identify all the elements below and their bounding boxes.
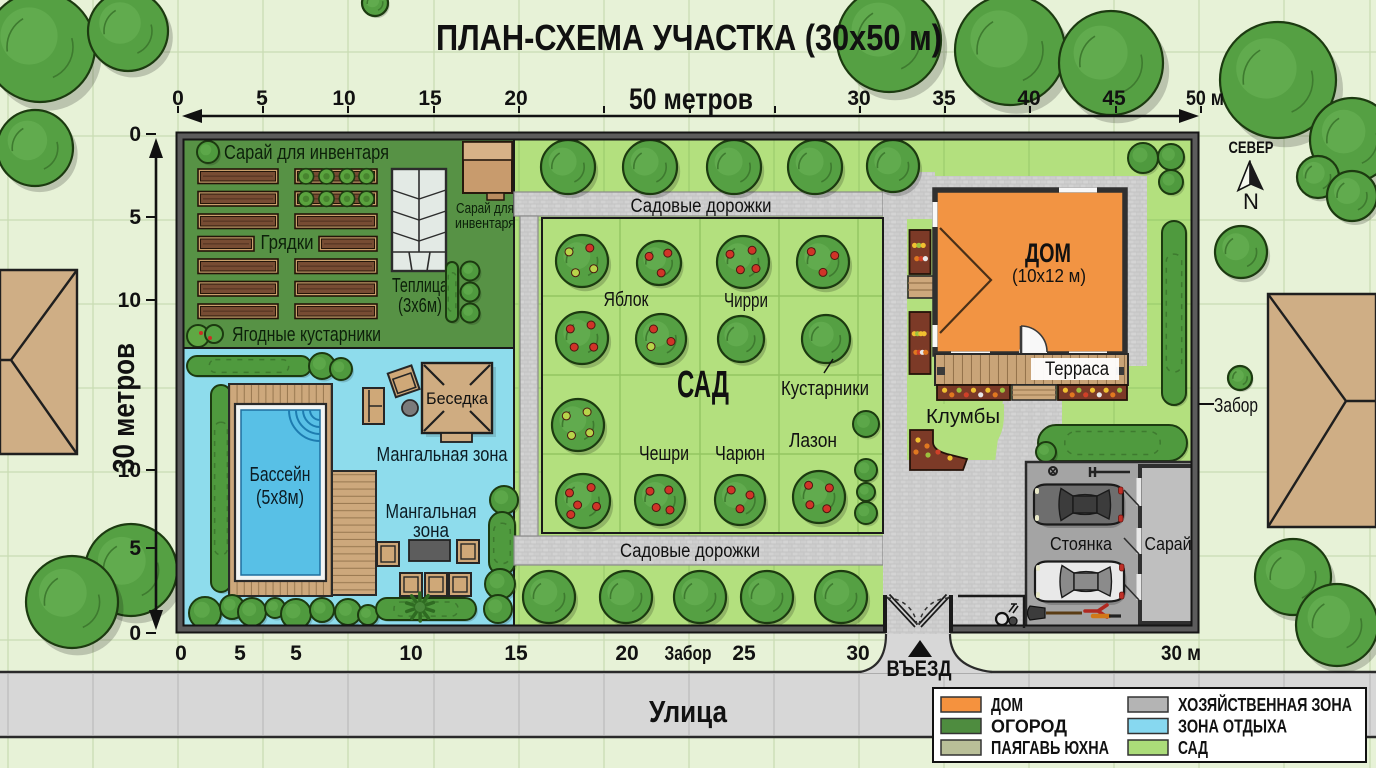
svg-text:Улица: Улица <box>649 694 728 729</box>
svg-text:50 метров: 50 метров <box>629 83 753 116</box>
svg-text:САД: САД <box>677 364 729 406</box>
svg-text:Сарай: Сарай <box>1145 534 1192 554</box>
svg-text:ВЪЕЗД: ВЪЕЗД <box>887 656 952 681</box>
svg-text:ЗОНА ОТДЫХА: ЗОНА ОТДЫХА <box>1178 717 1287 737</box>
svg-text:Забор: Забор <box>665 643 712 665</box>
svg-text:25: 25 <box>732 642 756 665</box>
svg-text:40: 40 <box>1017 87 1040 110</box>
svg-text:Садовые дорожки: Садовые дорожки <box>620 541 760 562</box>
svg-text:30: 30 <box>847 87 870 110</box>
svg-text:инвентаря: инвентаря <box>455 215 515 232</box>
svg-text:Забор: Забор <box>1214 395 1258 417</box>
svg-text:Яблок: Яблок <box>604 289 649 311</box>
svg-text:10: 10 <box>399 642 422 665</box>
svg-text:Кустарники: Кустарники <box>781 378 869 400</box>
svg-text:зона: зона <box>413 520 450 542</box>
svg-text:Чешри: Чешри <box>639 443 689 465</box>
svg-text:Стоянка: Стоянка <box>1050 534 1113 554</box>
svg-text:Садовые дорожки: Садовые дорожки <box>631 196 772 217</box>
svg-text:ПЛАН-СХЕМА УЧАСТКА (30х50 м): ПЛАН-СХЕМА УЧАСТКА (30х50 м) <box>436 17 942 58</box>
svg-text:50 м: 50 м <box>1186 87 1224 110</box>
svg-text:5: 5 <box>256 87 268 110</box>
svg-text:Теплица: Теплица <box>392 275 449 297</box>
svg-text:5: 5 <box>234 642 246 665</box>
svg-text:30 м: 30 м <box>1161 642 1201 665</box>
svg-text:30: 30 <box>846 642 869 665</box>
svg-text:0: 0 <box>175 642 187 665</box>
svg-text:(10х12 м): (10х12 м) <box>1012 266 1086 286</box>
svg-text:35: 35 <box>932 87 956 110</box>
svg-text:ПАЯГАВЬ ЮХНА: ПАЯГАВЬ ЮХНА <box>991 738 1109 758</box>
svg-text:15: 15 <box>504 642 528 665</box>
svg-text:ХОЗЯЙСТВЕННАЯ ЗОНА: ХОЗЯЙСТВЕННАЯ ЗОНА <box>1178 694 1352 715</box>
svg-text:Лазон: Лазон <box>789 430 837 452</box>
svg-text:ДОМ: ДОМ <box>1025 238 1071 268</box>
svg-text:ОГОРОД: ОГОРОД <box>991 717 1067 737</box>
svg-text:0: 0 <box>129 622 141 645</box>
svg-text:Ягодные кустарники: Ягодные кустарники <box>232 324 381 346</box>
svg-text:N: N <box>1243 189 1259 214</box>
svg-text:5: 5 <box>129 537 141 560</box>
svg-text:10: 10 <box>332 87 355 110</box>
svg-text:10: 10 <box>118 289 141 312</box>
svg-text:Чирри: Чирри <box>724 290 768 312</box>
svg-text:СЕВЕР: СЕВЕР <box>1229 138 1274 157</box>
svg-text:Терраса: Терраса <box>1045 359 1109 380</box>
svg-text:Сарай для инвентаря: Сарай для инвентаря <box>224 142 389 164</box>
svg-text:(3х6м): (3х6м) <box>398 295 442 317</box>
svg-text:ДОМ: ДОМ <box>991 695 1023 715</box>
svg-text:САД: САД <box>1178 738 1208 758</box>
svg-text:5: 5 <box>290 642 302 665</box>
svg-text:20: 20 <box>504 87 527 110</box>
svg-text:20: 20 <box>615 642 638 665</box>
svg-text:30 метров: 30 метров <box>106 343 141 473</box>
svg-text:45: 45 <box>1102 87 1126 110</box>
svg-text:0: 0 <box>172 87 184 110</box>
svg-text:5: 5 <box>129 206 141 229</box>
svg-text:Мангальная зона: Мангальная зона <box>377 444 509 466</box>
svg-text:Чарюн: Чарюн <box>715 443 765 465</box>
svg-text:0: 0 <box>129 123 141 146</box>
svg-text:Клумбы: Клумбы <box>926 406 1000 428</box>
svg-text:Грядки: Грядки <box>261 232 314 254</box>
svg-text:15: 15 <box>418 87 442 110</box>
svg-text:(5х8м): (5х8м) <box>256 487 304 509</box>
svg-text:Беседка: Беседка <box>426 389 489 408</box>
svg-text:Бассейн: Бассейн <box>250 464 311 486</box>
